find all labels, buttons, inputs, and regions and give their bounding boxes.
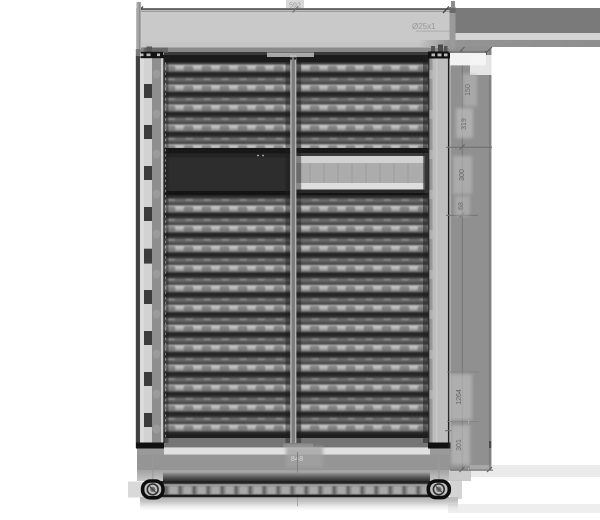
svg-text:301: 301: [456, 439, 463, 451]
svg-text:68: 68: [458, 202, 465, 210]
svg-text:150: 150: [465, 84, 472, 96]
svg-text:Ø25x1: Ø25x1: [412, 22, 436, 31]
svg-text:319: 319: [461, 118, 468, 130]
svg-text:1264: 1264: [456, 389, 463, 405]
svg-text:300: 300: [459, 169, 466, 181]
